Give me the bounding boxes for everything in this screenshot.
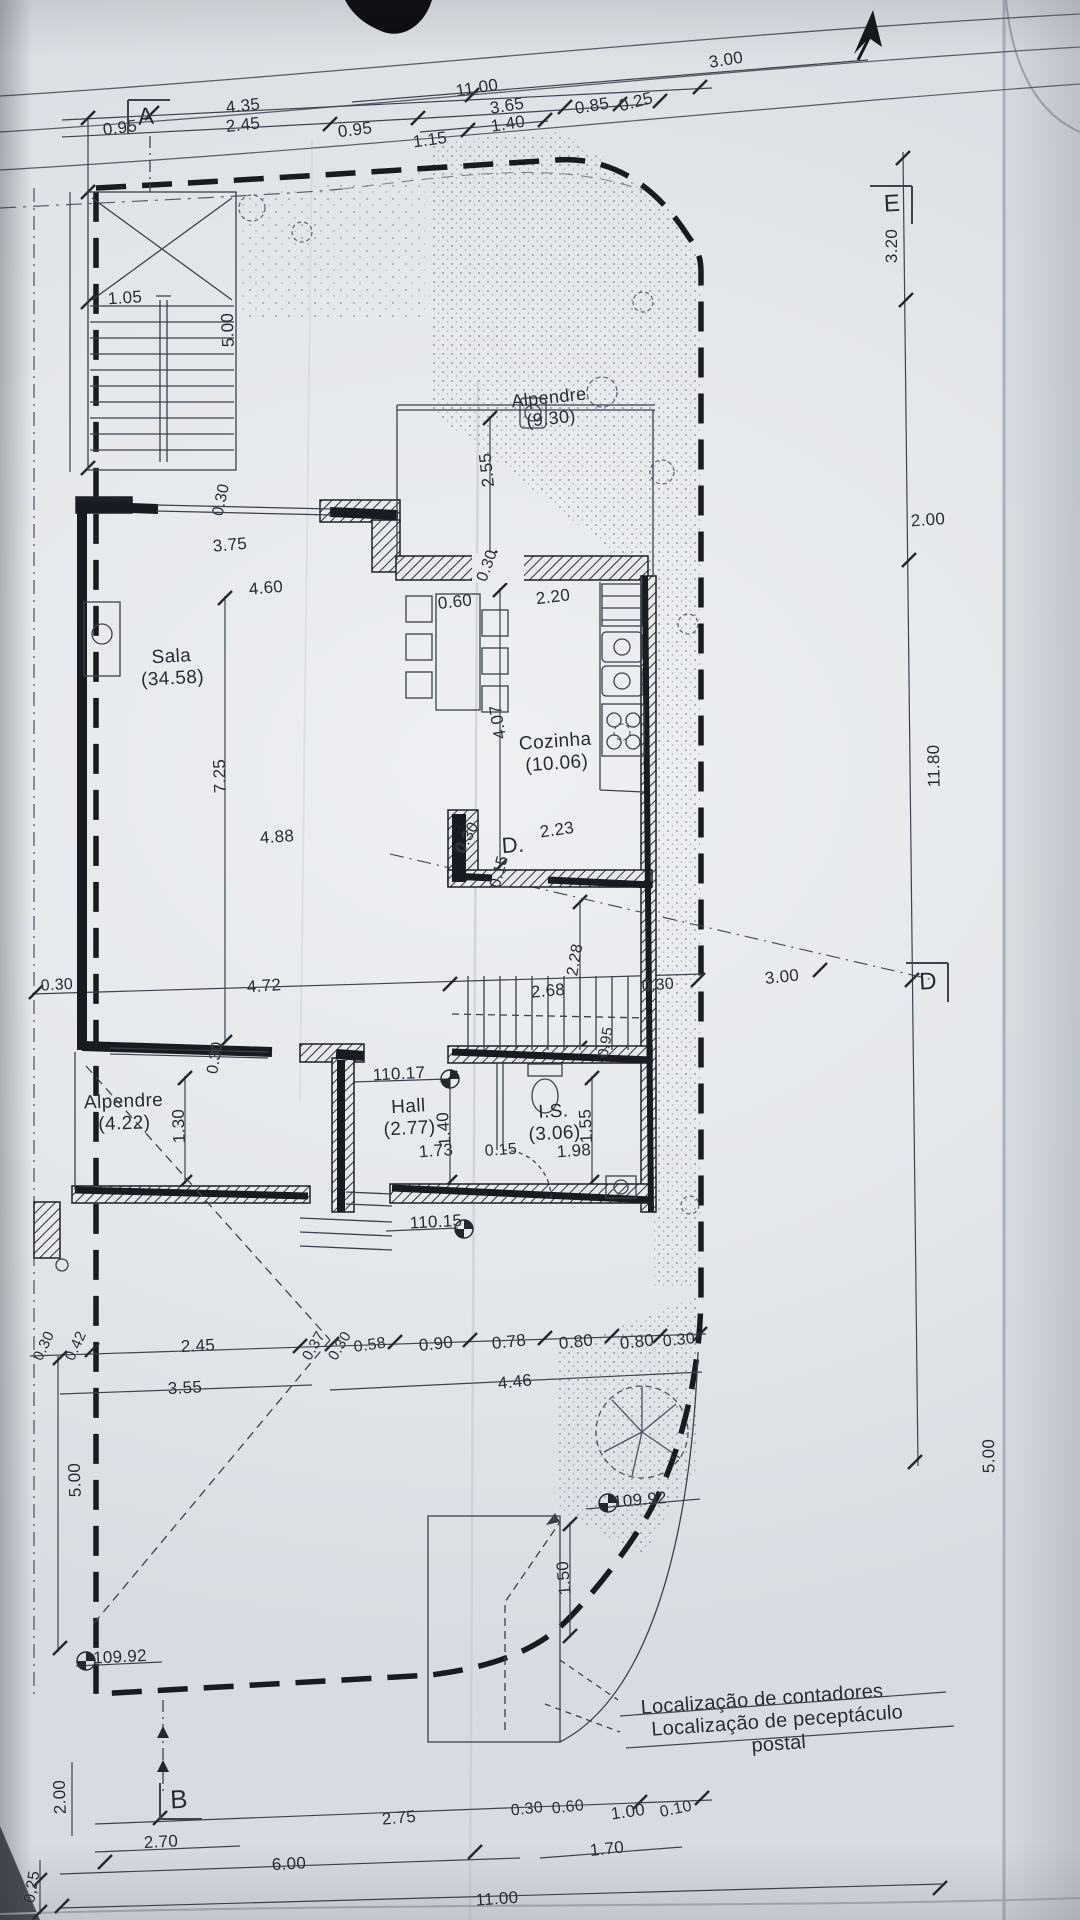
window-icon <box>110 505 332 1058</box>
walls <box>75 502 652 1212</box>
north-arrow-icon <box>854 10 882 60</box>
floor-plan-photo: 11.003.003.650.850.251.400.954.352.450.9… <box>0 0 1080 1920</box>
floor-plan-drawing <box>0 0 1080 1920</box>
